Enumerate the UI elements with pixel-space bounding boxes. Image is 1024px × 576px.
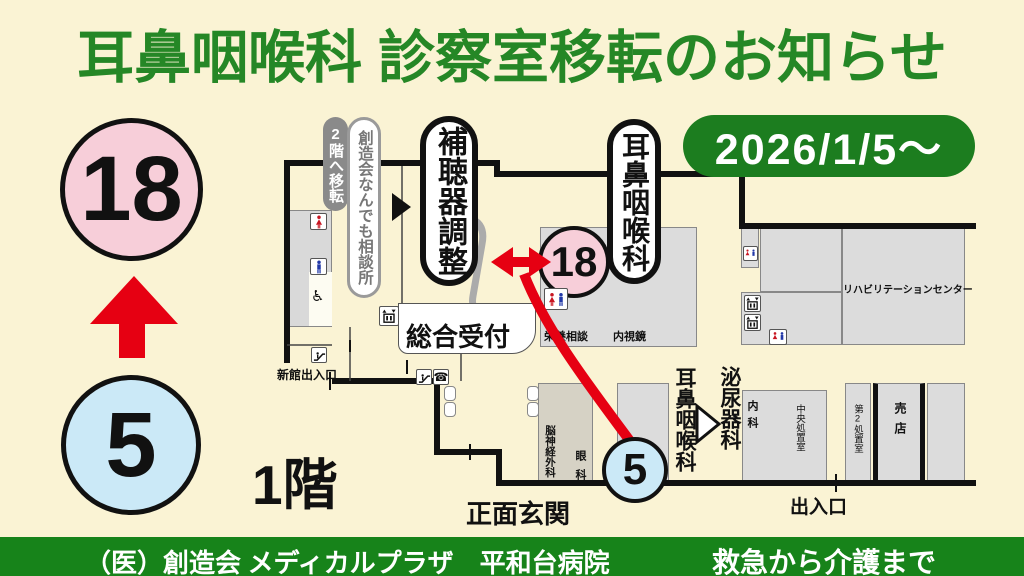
moved-to-2f-label: 2階へ移転 [325,126,346,203]
effective-date-badge: 2026/1/5〜 [683,115,975,177]
relocation-arrow-curve [524,274,641,456]
ent-pill: 耳鼻咽喉科 [607,119,661,284]
map-room5-number: 5 [623,445,647,495]
relocation-arrow [0,0,1024,576]
hospital-slogan: 救急から介護まで [712,541,936,576]
footer-bar: （医）創造会 メディカルプラザ 平和台病院 救急から介護まで [0,537,1024,576]
relocation-arrow-head-right [529,247,551,277]
ent-pill-label: 耳鼻咽喉科 [614,132,654,272]
moved-to-2f-pill: 2階へ移転 [323,117,348,211]
hospital-name: （医）創造会 メディカルプラザ 平和台病院 [85,543,610,576]
map-room5-circle: 5 [602,437,668,503]
consultation-office-pill: 創造会なんでも相談所 [347,117,381,298]
relocation-arrow-head-left [491,247,513,277]
notice-poster: 耳鼻咽喉科 診察室移転のお知らせ 18 5 2026/1/5〜 18 総合受付 … [0,0,1024,576]
consultation-office-label: 創造会なんでも相談所 [353,130,375,285]
hearing-aid-pill: 補聴器調整 [420,116,478,286]
hearing-aid-label: 補聴器調整 [427,126,471,276]
